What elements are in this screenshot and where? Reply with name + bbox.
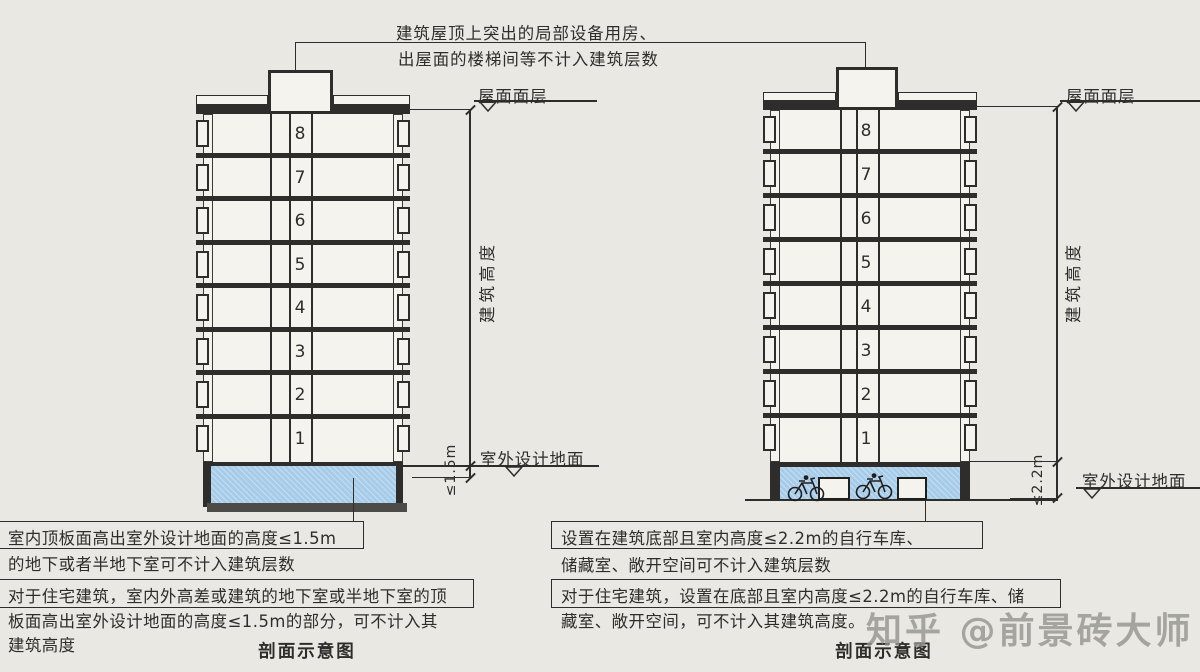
left-building-window-left-7 — [196, 164, 209, 191]
left-building-window-right-4 — [397, 294, 410, 321]
right-building-slab-3 — [763, 237, 977, 242]
right-building-penthouse — [836, 67, 898, 110]
right-roof-level-icon — [1067, 101, 1085, 112]
left-building-slab-4 — [196, 283, 410, 288]
left-building-roof-slab-0 — [196, 104, 268, 114]
left-basement-leader — [353, 478, 354, 522]
left-ground-level-icon — [505, 466, 523, 477]
right-building-window-right-4 — [964, 292, 977, 319]
left-foundation — [207, 503, 407, 512]
left-building-shaft-line-1 — [289, 114, 291, 462]
right-building-window-left-6 — [763, 204, 776, 231]
right-storage-wall-right — [960, 467, 970, 500]
left-building-slab-6 — [196, 370, 410, 375]
left-building-window-right-3 — [397, 338, 410, 365]
right-building-floor-number: 6 — [861, 209, 872, 229]
left-building-window-left-1 — [196, 425, 209, 452]
right-building-floor-number: 7 — [861, 165, 872, 185]
left-building-window-left-2 — [196, 381, 209, 408]
left-roof-level-icon — [479, 101, 497, 112]
right-building-slab-6 — [763, 369, 977, 374]
left-note1-line1: 室内顶板面高出室外设计地面的高度≤1.5m — [8, 525, 337, 549]
left-building-penthouse — [268, 70, 333, 114]
right-roof-extension-line — [974, 106, 1058, 107]
right-building-window-right-2 — [964, 380, 977, 407]
right-building-window-left-3 — [763, 336, 776, 363]
left-building-floor-number: 4 — [295, 298, 306, 318]
right-height-dim-line — [1056, 106, 1058, 498]
left-building-floor-number: 1 — [295, 429, 306, 449]
left-building-window-right-1 — [397, 425, 410, 452]
left-building-window-left-3 — [196, 338, 209, 365]
right-building-window-right-8 — [964, 116, 977, 143]
left-building-slab-7 — [196, 414, 410, 419]
left-building-window-right-8 — [397, 120, 410, 147]
roof-note-line2: 出屋面的楼梯间等不计入建筑层数 — [398, 46, 659, 70]
section-diagram-canvas: 8765432187654321 建筑屋顶上突出的局部设备用房、 出屋面的楼梯间… — [0, 0, 1200, 672]
right-building-window-left-1 — [763, 424, 776, 451]
left-building-height-label: 建筑高度 — [474, 241, 498, 323]
left-building-window-left-5 — [196, 251, 209, 278]
right-building-window-left-4 — [763, 292, 776, 319]
left-note1-line2: 的地下或者半地下室可不计入建筑层数 — [8, 551, 295, 575]
left-building-slab-3 — [196, 240, 410, 245]
right-building-window-left-2 — [763, 380, 776, 407]
right-building-window-right-7 — [964, 160, 977, 187]
right-building-floor-number: 2 — [861, 385, 872, 405]
right-building-slab-1 — [763, 149, 977, 154]
right-building-window-left-7 — [763, 160, 776, 187]
right-storage-wall-left — [770, 467, 780, 500]
right-building-floor-number: 8 — [861, 121, 872, 141]
left-building-floor-number: 3 — [295, 342, 306, 362]
left-note2-line1: 对于住宅建筑，室内外高差或建筑的地下室或半地下室的顶 — [8, 583, 447, 607]
right-building-window-right-6 — [964, 204, 977, 231]
right-building-shaft-line-1 — [856, 110, 858, 462]
left-building-shaft-line-0 — [270, 114, 272, 462]
left-lower-ground-line — [412, 477, 470, 478]
left-roof-extension-line — [407, 109, 470, 110]
left-building-window-right-7 — [397, 164, 410, 191]
right-building-floor-number: 1 — [861, 429, 872, 449]
left-building-window-right-6 — [397, 207, 410, 234]
right-building-window-left-5 — [763, 248, 776, 275]
left-height-dim-line — [469, 109, 471, 478]
right-building-roof-slab-1 — [898, 100, 977, 110]
left-building-window-left-8 — [196, 120, 209, 147]
left-building-slab-2 — [196, 196, 410, 201]
roof-note-line1: 建筑屋顶上突出的局部设备用房、 — [396, 20, 657, 44]
left-building-shaft-line-2 — [311, 114, 313, 462]
right-building-window-left-8 — [763, 116, 776, 143]
right-storage-leader — [925, 500, 926, 522]
right-building-body — [770, 110, 970, 462]
right-building-slab-4 — [763, 281, 977, 286]
left-basement-dim: ≤1.5m — [443, 444, 459, 497]
left-section-caption: 剖面示意图 — [258, 638, 356, 663]
right-building-floor-number: 4 — [861, 297, 872, 317]
right-building-window-right-5 — [964, 248, 977, 275]
right-basement-dim: ≤2.2m — [1030, 454, 1046, 507]
right-building-slab-5 — [763, 325, 977, 330]
right-note1-line2: 储藏室、敞开空间可不计入建筑层数 — [561, 552, 831, 576]
left-building-slab-5 — [196, 327, 410, 332]
right-ground-level-icon — [1083, 488, 1101, 499]
left-building-window-right-2 — [397, 381, 410, 408]
right-building-floor-number: 5 — [861, 253, 872, 273]
bicycle-icon — [854, 470, 894, 500]
left-building-floor-number: 6 — [295, 211, 306, 231]
left-building-window-left-6 — [196, 207, 209, 234]
left-building-slab-1 — [196, 153, 410, 158]
left-building-roof-slab-1 — [333, 104, 410, 114]
left-basement-blue — [211, 466, 396, 503]
right-note2-line2: 藏室、敞开空间，可不计入其建筑高度。 — [561, 608, 865, 632]
right-note1-line1: 设置在建筑底部且室内高度≤2.2m的自行车库、 — [561, 525, 923, 549]
door-opening — [897, 477, 927, 500]
right-building-window-right-1 — [964, 424, 977, 451]
left-note2-line2: 板面高出室外设计地面的高度≤1.5m的部分，可不计入其 — [8, 608, 438, 632]
right-building-slab-7 — [763, 413, 977, 418]
left-building-floor-number: 2 — [295, 385, 306, 405]
left-building-floor-number: 7 — [295, 168, 306, 188]
right-building-height-label: 建筑高度 — [1060, 241, 1084, 323]
bicycle-icon — [786, 472, 826, 502]
right-building-window-right-3 — [964, 336, 977, 363]
right-building-slab-2 — [763, 193, 977, 198]
right-building-shaft-line-2 — [878, 110, 880, 462]
left-note2-line3: 建筑高度 — [8, 632, 76, 656]
watermark-text: 知乎 @前景砖大师 — [866, 602, 1194, 654]
left-building-floor-number: 5 — [295, 255, 306, 275]
left-building-body — [203, 114, 403, 462]
left-building-window-right-5 — [397, 251, 410, 278]
left-building-floor-number: 8 — [295, 124, 306, 144]
right-building-floor-number: 3 — [861, 341, 872, 361]
left-building-window-left-4 — [196, 294, 209, 321]
right-building-shaft-line-0 — [840, 110, 842, 462]
right-building-roof-slab-0 — [763, 100, 836, 110]
